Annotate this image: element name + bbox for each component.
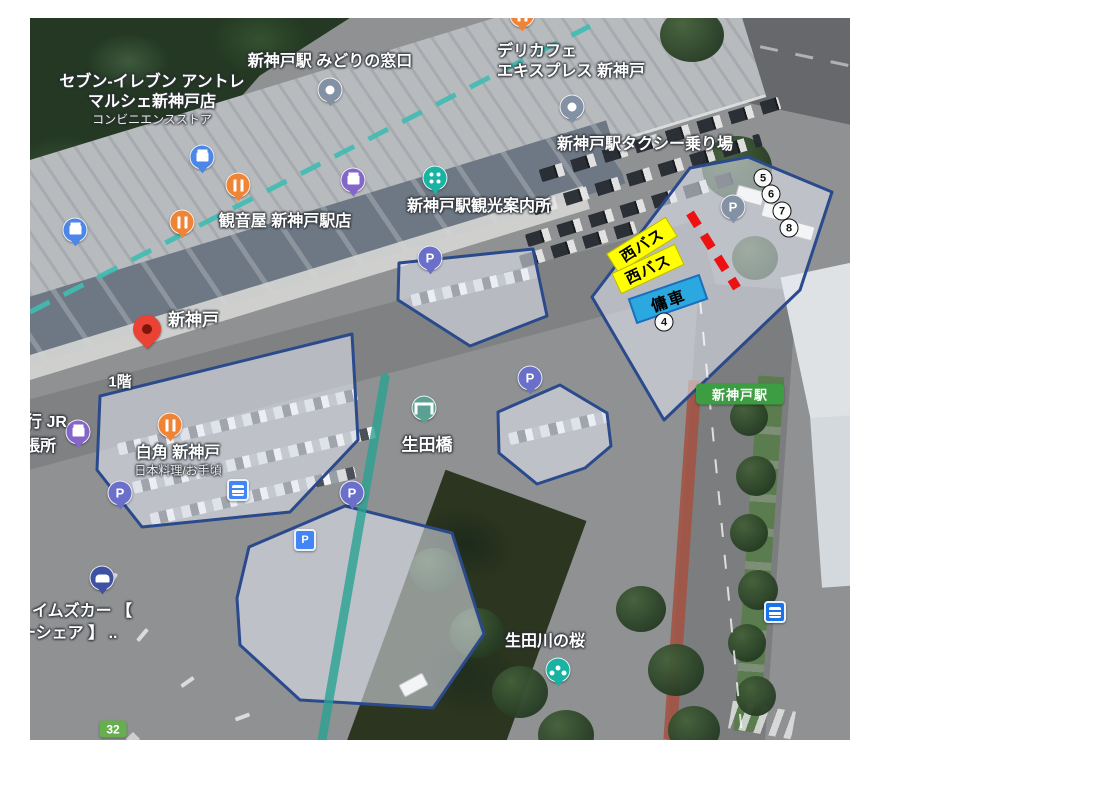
parking-icon: P	[116, 487, 125, 500]
circled-number-6: 6	[762, 185, 781, 204]
poi-label-times-car-1: イムズカー 【	[32, 602, 132, 622]
label-line: 白角 新神戸	[136, 445, 220, 462]
highlight-area-bridge-lot	[498, 385, 611, 484]
parking-pin[interactable]: P	[108, 481, 133, 506]
tourist-info-pin[interactable]	[423, 166, 448, 191]
store-icon	[72, 428, 84, 437]
label-category: 日本料理/お手頃	[134, 464, 221, 479]
car-share-pin[interactable]	[90, 566, 115, 591]
parking-icon: P	[348, 487, 357, 500]
dot-icon	[568, 103, 577, 112]
parking-square-icon[interactable]: P	[294, 529, 316, 551]
label-line: 1階	[108, 374, 131, 391]
number-text: 6	[768, 188, 774, 200]
bank-branch-pin[interactable]	[66, 420, 91, 445]
poi-label-seven-eleven: セブン-イレブン アントレ マルシェ新神戸店 コンビニエンスストア	[59, 73, 244, 128]
store-icon	[347, 176, 359, 185]
number-text: 5	[760, 172, 766, 184]
route-number-badge: 32	[100, 721, 127, 738]
label-line: 張所	[30, 438, 56, 455]
dot-icon	[326, 86, 335, 95]
label-category: コンビニエンスストア	[59, 113, 244, 128]
label-line: 生田川の桜	[505, 633, 585, 650]
parking-icon: P	[526, 372, 535, 385]
bridge-icon	[415, 402, 434, 414]
midori-ticket-office-pin[interactable]	[318, 78, 343, 103]
parking-pin[interactable]: P	[340, 481, 365, 506]
parking-pin[interactable]: P	[518, 366, 543, 391]
label-line: 観音屋 新神戸駅店	[219, 213, 351, 230]
flower-icon	[556, 665, 561, 670]
info-icon	[430, 173, 434, 177]
circled-number-8: 8	[780, 219, 799, 238]
circled-number-4: 4	[655, 313, 674, 332]
poi-label-restaurant: 白角 新神戸 日本料理/お手頃	[134, 444, 221, 479]
taxi-stand-pin[interactable]	[560, 95, 585, 120]
label-line: マルシェ新神戸店	[88, 94, 216, 111]
restaurant-icon	[165, 419, 175, 431]
parking-icon: P	[301, 535, 308, 546]
label-floor-1: 1階	[108, 374, 131, 393]
convenience-store-pin[interactable]	[190, 145, 215, 170]
restaurant-pin[interactable]	[170, 210, 195, 235]
label-line: 新神戸駅 みどりの窓口	[248, 53, 412, 70]
parking-icon: P	[729, 201, 738, 214]
parking-pin[interactable]: P	[721, 195, 746, 220]
poi-label-times-car-2: ーシェア 】 ..	[30, 624, 117, 644]
label-line: 生田橋	[402, 435, 453, 454]
poi-label-kannonya: 観音屋 新神戸駅店	[219, 212, 351, 232]
label-line: 新神戸駅タクシー乗り場	[557, 136, 733, 153]
label-line: セブン-イレブン アントレ	[59, 74, 244, 91]
cherry-blossom-pin[interactable]	[546, 658, 571, 683]
poi-label-jr-branch-1: 行 JR	[30, 413, 67, 433]
convenience-store-pin[interactable]	[63, 218, 88, 243]
number-text: 7	[779, 205, 785, 217]
label-line: 新神戸	[168, 310, 219, 329]
restaurant-pin[interactable]	[158, 413, 183, 438]
poi-label-taxi-stand: 新神戸駅タクシー乗り場	[557, 135, 733, 155]
label-line: イムズカー 【	[32, 603, 132, 620]
bus-stop-icon[interactable]	[227, 479, 249, 501]
store-icon	[196, 153, 208, 162]
poi-label-jr-branch-2: 張所	[30, 437, 56, 457]
restaurant-icon	[517, 18, 527, 21]
label-line: デリカフェ	[497, 43, 577, 60]
parking-icon: P	[426, 252, 435, 265]
shop-pin[interactable]	[341, 168, 366, 193]
restaurant-icon	[233, 179, 243, 191]
label-ikuta-bridge: 生田橋	[402, 434, 453, 455]
poi-label-tourist-info: 新神戸駅観光案内所	[407, 197, 551, 217]
label-line: 行 JR	[30, 414, 67, 431]
satellite-map[interactable]: 西バス 西バス 傭車 5 6 7 8 4 P P P P P P セブン-イレブ…	[30, 18, 850, 740]
station-badge-text: 新神戸駅	[712, 385, 768, 404]
label-ikuta-river-sakura: 生田川の桜	[505, 632, 585, 652]
car-icon	[95, 574, 109, 582]
document-page: 西バス 西バス 傭車 5 6 7 8 4 P P P P P P セブン-イレブ…	[0, 0, 1099, 802]
bus-stop-icon[interactable]	[764, 601, 786, 623]
bus-icon	[769, 607, 781, 618]
restaurant-pin[interactable]	[226, 173, 251, 198]
label-shin-kobe: 新神戸	[168, 309, 219, 330]
label-line: ーシェア 】 ..	[30, 625, 117, 642]
bridge-pin[interactable]	[412, 396, 437, 421]
station-badge[interactable]: 新神戸駅	[696, 384, 784, 405]
poi-label-delicafe: デリカフェ エキスプレス 新神戸	[497, 42, 645, 82]
restaurant-icon	[177, 216, 187, 228]
route-number-text: 32	[106, 722, 119, 736]
store-icon	[69, 226, 81, 235]
parking-pin[interactable]: P	[418, 246, 443, 271]
bus-icon	[232, 485, 244, 496]
number-text: 4	[661, 316, 667, 328]
number-text: 8	[786, 222, 792, 234]
label-line: エキスプレス 新神戸	[497, 63, 645, 80]
label-line: 新神戸駅観光案内所	[407, 198, 551, 215]
poi-label-midori: 新神戸駅 みどりの窓口	[248, 52, 412, 72]
